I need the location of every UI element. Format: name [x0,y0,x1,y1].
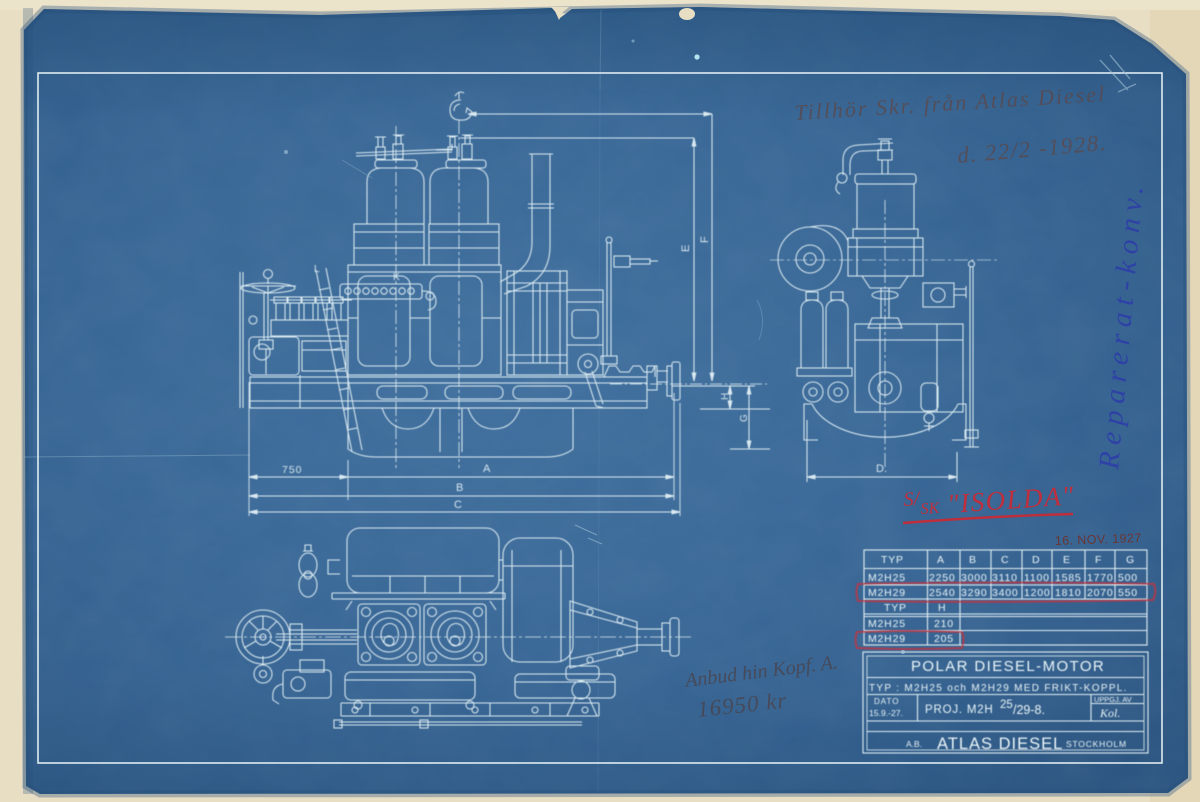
svg-text:DATO: DATO [874,697,899,706]
svg-text:M2H29: M2H29 [868,633,906,645]
svg-text:500: 500 [1118,572,1138,584]
svg-text:SK: SK [920,500,941,518]
svg-text:E: E [680,245,692,252]
svg-text:POLAR DIESEL-MOTOR: POLAR DIESEL-MOTOR [911,658,1105,675]
svg-text:210: 210 [934,618,954,630]
svg-text:TYP: TYP [881,554,904,566]
svg-text:A.B.: A.B. [906,739,922,749]
svg-text:1200: 1200 [1024,587,1051,599]
svg-text:H: H [938,602,946,614]
svg-text:F: F [699,236,711,243]
svg-text:1810: 1810 [1055,587,1082,599]
svg-text:F: F [1095,554,1102,566]
svg-text:15.9.-27.: 15.9.-27. [869,708,903,718]
svg-text:H: H [720,393,731,400]
svg-text:E: E [1063,554,1071,566]
svg-text:2070: 2070 [1087,587,1114,599]
svg-text:M2H29: M2H29 [868,587,906,599]
svg-text:C: C [454,499,462,511]
svg-text:M2H25: M2H25 [868,572,906,584]
svg-text:Kol.: Kol. [1099,706,1120,720]
svg-text:550: 550 [1118,587,1138,599]
svg-text:M2H25: M2H25 [868,618,906,630]
svg-text:2540: 2540 [929,587,956,599]
svg-text:3290: 3290 [961,587,988,599]
svg-text:UPPGJ. AV: UPPGJ. AV [1094,695,1132,704]
svg-text:ATLAS DIESEL: ATLAS DIESEL [937,735,1063,753]
svg-text:3400: 3400 [992,587,1019,599]
svg-text:B: B [456,482,463,494]
svg-text:B: B [969,554,977,566]
svg-text:A: A [937,554,945,566]
svg-text:TYP: TYP [884,602,907,614]
svg-text:PROJ. M2H: PROJ. M2H [925,704,994,716]
svg-text:25: 25 [1000,699,1013,711]
svg-text:750: 750 [282,464,303,476]
svg-text:G: G [1126,554,1135,566]
svg-text:D.: D. [876,463,887,475]
svg-text:A: A [483,463,491,475]
svg-text:205: 205 [934,633,954,645]
svg-text:/29-8.: /29-8. [1013,703,1045,717]
svg-text:STOCKHOLM: STOCKHOLM [1066,739,1127,749]
svg-text:C: C [1001,554,1009,566]
svg-text:D: D [1032,554,1040,566]
svg-text:K: K [393,272,400,283]
svg-text:TYP : M2H25 och M2H29 MED FRIK: TYP : M2H25 och M2H29 MED FRIKT-KOPPL. [869,683,1128,694]
svg-text:G: G [739,414,750,422]
